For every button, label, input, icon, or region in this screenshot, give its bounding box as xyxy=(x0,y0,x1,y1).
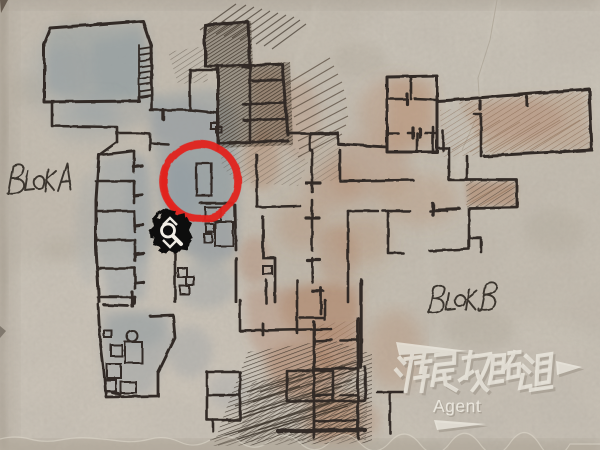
svg-text:Agent: Agent xyxy=(433,396,481,416)
